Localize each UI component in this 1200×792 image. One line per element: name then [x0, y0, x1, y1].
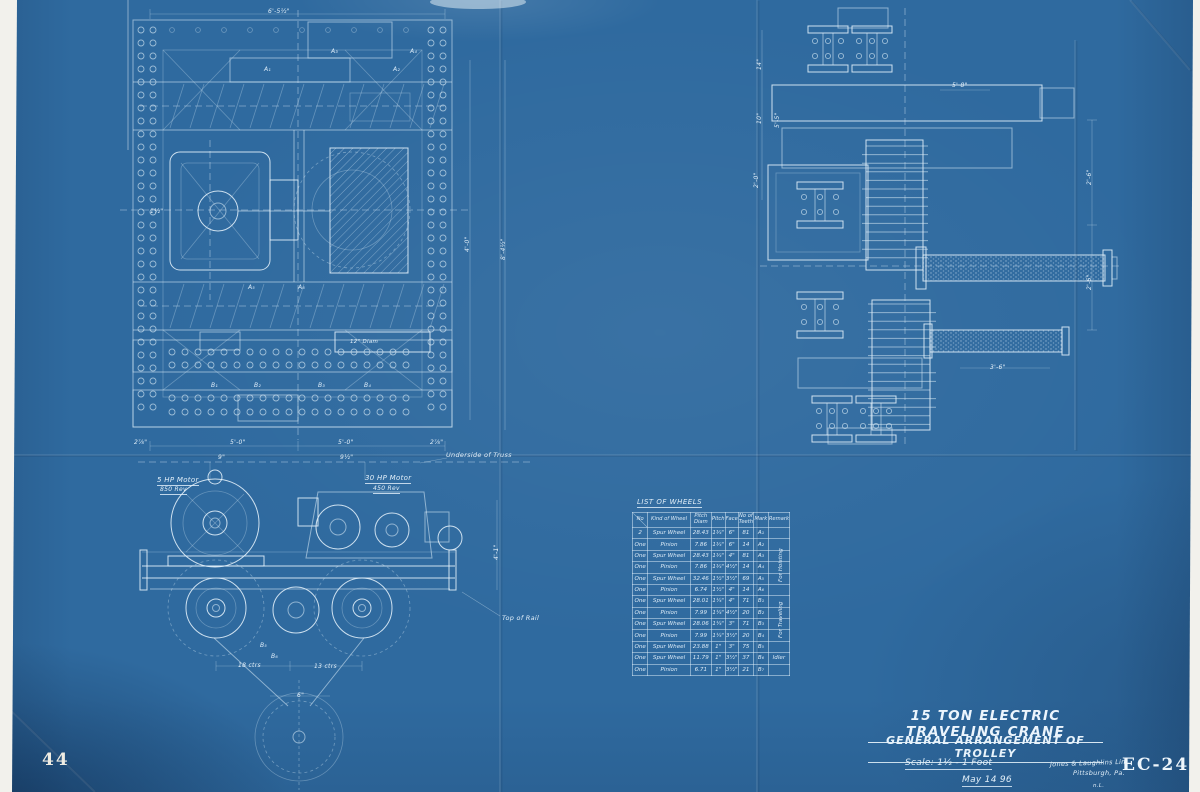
drum-diameter-label: 12" Diam [350, 339, 378, 345]
wheel-cell: 1¼" [711, 619, 725, 630]
fold-creases [0, 0, 1200, 792]
wheel-cell: Spur Wheel [648, 527, 690, 538]
wheel-cell: 69 [738, 573, 753, 584]
wheel-cell: Pinion [648, 539, 690, 550]
wheel-cell: 3½" [725, 664, 738, 675]
wheel-cell: 28.01 [690, 596, 711, 607]
wheel-cell: 6.74 [690, 584, 711, 595]
plan-view [120, 10, 470, 440]
wheel-cell: 1¾" [711, 527, 725, 538]
list-of-wheels: LIST OF WHEELS NoKind of WheelPitch Diam… [632, 491, 804, 676]
wheel-mark: B₆ [271, 653, 278, 660]
wheel-cell: 20 [738, 630, 753, 641]
wheel-col-header: Remark [768, 513, 789, 528]
draftsman-initials: n.L. [1093, 783, 1104, 789]
wheel-cell: Spur Wheel [648, 596, 690, 607]
wheel-cell: A₃ [754, 550, 769, 561]
wheel-cell: 1¼" [711, 596, 725, 607]
wheel-mark: B₂ [254, 382, 261, 389]
wheel-row: OneSpur Wheel11.791"3½"37B₆Idler [633, 653, 790, 664]
dimension-label: 5'-0" [230, 439, 246, 446]
drum-coil-ribs [862, 146, 936, 424]
wheel-cell: Pinion [648, 630, 690, 641]
wheel-cell: Spur Wheel [648, 573, 690, 584]
wheel-cell: 1" [711, 641, 725, 652]
wheel-cell: One [633, 550, 648, 561]
list-of-wheels-table: NoKind of WheelPitch DiamPitchFaceNo of … [632, 512, 790, 676]
wheel-mark: A₁ [264, 66, 271, 73]
wheel-row: OnePinion7.861¾"6"14A₂ [633, 539, 790, 550]
motor-30hp-speed-label: 450 Rev [373, 485, 400, 494]
dimension-label: 5'-8" [952, 82, 968, 89]
wheel-cell: 1½" [711, 573, 725, 584]
wheel-mark: A₃ [331, 48, 338, 55]
scale-label: Scale: 1½ - 1 Foot [905, 758, 992, 770]
wheel-cell: B₃ [754, 619, 769, 630]
motor-5hp-speed-label: 850 Rev [160, 486, 187, 495]
wheel-cell: One [633, 607, 648, 618]
dimension-label: 6'-5½" [268, 8, 290, 15]
fold-glare [430, 0, 526, 9]
wheel-cell: 71 [738, 619, 753, 630]
wheel-cell [768, 584, 789, 595]
dimension-label: 13 ctrs [314, 663, 337, 670]
dimension-label: 2'-0" [753, 172, 760, 188]
wheel-row: OnePinion7.861¾"4½"14A₄ [633, 562, 790, 573]
wheel-cell: 1¾" [711, 562, 725, 573]
dimension-label: 4'-1" [493, 544, 500, 560]
wheel-cell: 28.43 [690, 527, 711, 538]
wheel-cell [768, 664, 789, 675]
drawing-number: EC-24 [1122, 755, 1189, 775]
wheel-cell: Pinion [648, 562, 690, 573]
wheel-cell: A₁ [754, 527, 769, 538]
wheel-table-body: 2Spur Wheel28.431¾"6"81A₁OnePinion7.861¾… [633, 527, 790, 675]
wheel-mark: B₁ [211, 382, 218, 389]
wheel-cell: 3½" [725, 573, 738, 584]
wheel-cell: B₆ [754, 653, 769, 664]
wheel-mark: A₆ [298, 284, 305, 291]
wheel-cell: Pinion [648, 664, 690, 675]
wheel-row: OnePinion6.741½"4"14A₆ [633, 584, 790, 595]
wheel-row: OneSpur Wheel28.431¾"4"81A₃ [633, 550, 790, 561]
wheel-col-header: Kind of Wheel [648, 513, 690, 528]
wheel-cell [768, 527, 789, 538]
wheel-cell: 1¾" [711, 539, 725, 550]
wheel-cell: B₅ [754, 641, 769, 652]
dimension-label: 8'-4½" [500, 238, 507, 260]
wheel-cell: 1¼" [711, 607, 725, 618]
wheel-cell: B₂ [754, 607, 769, 618]
motor-30hp-label: 30 HP Motor [365, 474, 411, 484]
wheel-cell: 14 [738, 539, 753, 550]
wheel-table-head: NoKind of WheelPitch DiamPitchFaceNo of … [633, 513, 790, 528]
wheel-col-header: Face [725, 513, 738, 528]
dimension-label: 14" [756, 59, 763, 70]
wheel-cell: 1½" [711, 584, 725, 595]
wheel-cell: 6" [725, 527, 738, 538]
wheel-col-header: No [633, 513, 648, 528]
wheel-cell: 1¼" [711, 630, 725, 641]
wheel-cell: 3" [725, 619, 738, 630]
remark-for-hoisting: For Hoisting [778, 548, 784, 582]
dimension-label: 18 ctrs [238, 662, 261, 669]
wheel-cell: 4½" [725, 562, 738, 573]
wheel-row: OneSpur Wheel28.011¼"4"71B₁ [633, 596, 790, 607]
dimension-label: 2⅞" [430, 439, 443, 446]
wheel-cell: 21 [738, 664, 753, 675]
wheel-cell: Idler [768, 653, 789, 664]
motor-5hp-label: 5 HP Motor [157, 476, 199, 486]
blueprint-sheet: 5 HP Motor 850 Rev 30 HP Motor 450 Rev U… [0, 0, 1200, 792]
dimension-label: 9" [218, 454, 225, 461]
top-of-rail-label: Top of Rail [502, 614, 539, 622]
underside-of-truss-label: Underside of Truss [446, 451, 512, 459]
wheel-col-header: No of Teeth [738, 513, 753, 528]
wheel-cell: One [633, 630, 648, 641]
wheel-cell: 23.88 [690, 641, 711, 652]
wheel-cell: A₂ [754, 539, 769, 550]
ibeam-sections [797, 26, 896, 442]
wheel-row: OneSpur Wheel23.881"3"75B₅ [633, 641, 790, 652]
remark-for-traveling: For Traveling [778, 602, 784, 638]
wheel-cell: 7.99 [690, 630, 711, 641]
wheel-cell: 1" [711, 664, 725, 675]
wheel-cell: B₁ [754, 596, 769, 607]
wheel-mark: A₄ [410, 48, 417, 55]
dimension-label: 3'-6" [990, 364, 1006, 371]
wheel-cell: 3" [725, 641, 738, 652]
wheel-cell: 7.86 [690, 539, 711, 550]
wheel-cell: 4½" [725, 607, 738, 618]
wheel-cell: 4" [725, 550, 738, 561]
list-of-wheels-caption: LIST OF WHEELS [637, 498, 702, 508]
scanned-blueprint-page: 5 HP Motor 850 Rev 30 HP Motor 450 Rev U… [0, 0, 1200, 792]
wheel-cell: One [633, 539, 648, 550]
wheel-cell: One [633, 641, 648, 652]
wheel-col-header: Pitch Diam [690, 513, 711, 528]
wheel-cell: Pinion [648, 584, 690, 595]
wheel-cell: One [633, 573, 648, 584]
wheel-cell: One [633, 596, 648, 607]
end-elevation-view [138, 462, 530, 790]
dimension-label: 5'-0" [338, 439, 354, 446]
wheel-row: OneSpur Wheel32.461½"3½"69A₅ [633, 573, 790, 584]
wheel-cell: A₄ [754, 562, 769, 573]
dimension-label: 6" [297, 692, 304, 699]
wheel-cell: 1¾" [711, 550, 725, 561]
wheel-cell: Pinion [648, 607, 690, 618]
wheel-cell: One [633, 664, 648, 675]
wheel-cell: 7.99 [690, 607, 711, 618]
wheel-mark: B₄ [364, 382, 371, 389]
wheel-cell: 4" [725, 584, 738, 595]
drawing-linework [0, 0, 1200, 792]
wheel-mark: B₃ [318, 382, 325, 389]
wheel-cell: 20 [738, 607, 753, 618]
wheel-cell: Spur Wheel [648, 550, 690, 561]
wheel-cell: One [633, 584, 648, 595]
wheel-cell: One [633, 653, 648, 664]
wheel-row: 2Spur Wheel28.431¾"6"81A₁ [633, 527, 790, 538]
wheel-cell: 81 [738, 550, 753, 561]
wheel-cell: 28.06 [690, 619, 711, 630]
wheel-mark: A₂ [393, 66, 400, 73]
wheel-cell: 7.86 [690, 562, 711, 573]
wheel-row: OneSpur Wheel28.061¼"3"71B₃ [633, 619, 790, 630]
wheel-col-header: Mark [754, 513, 769, 528]
sheet-number: 44 [42, 750, 70, 770]
wheel-cell: Spur Wheel [648, 619, 690, 630]
wheel-cell: 1" [711, 653, 725, 664]
wheel-cell: B₄ [754, 630, 769, 641]
wheel-cell: 71 [738, 596, 753, 607]
wheel-cell: 3½" [725, 630, 738, 641]
company-city: Pittsburgh, Pa. [1073, 769, 1125, 777]
wheel-cell: 28.43 [690, 550, 711, 561]
wheel-cell: 14 [738, 562, 753, 573]
wheel-cell: 3½" [725, 653, 738, 664]
wheel-cell: B₇ [754, 664, 769, 675]
wheel-cell: 32.46 [690, 573, 711, 584]
wheel-table-head-row: NoKind of WheelPitch DiamPitchFaceNo of … [633, 513, 790, 528]
wheel-cell: 4" [725, 596, 738, 607]
wheel-cell: 14 [738, 584, 753, 595]
wheel-col-header: Pitch [711, 513, 725, 528]
wheel-mark: A₅ [248, 284, 255, 291]
wheel-row: OnePinion7.991¼"4½"20B₂ [633, 607, 790, 618]
wheel-cell: Spur Wheel [648, 653, 690, 664]
wheel-cell: 75 [738, 641, 753, 652]
wheel-cell [768, 641, 789, 652]
dimension-label: 2'-6" [1086, 169, 1093, 185]
wheel-cell: 6.71 [690, 664, 711, 675]
dimension-label: 1½" [150, 208, 163, 215]
wheel-cell: A₆ [754, 584, 769, 595]
wheel-row: OnePinion7.991¼"3½"20B₄ [633, 630, 790, 641]
wheel-cell: One [633, 562, 648, 573]
date-label: May 14 96 [962, 775, 1012, 787]
dimension-label: 2⅞" [134, 439, 147, 446]
wheel-cell: 2 [633, 527, 648, 538]
wheel-cell: 6" [725, 539, 738, 550]
wheel-cell: One [633, 619, 648, 630]
dimension-label: 9½" [340, 454, 353, 461]
wheel-mark: B₅ [260, 642, 267, 649]
dimension-label: 4'-0" [464, 236, 471, 252]
wheel-row: OnePinion6.711"3½"21B₇ [633, 664, 790, 675]
dimension-label: 2'-6" [1086, 274, 1093, 290]
dimension-label: 10" [756, 113, 763, 124]
dimension-label: 5'-5" [774, 112, 781, 128]
wheel-cell: Spur Wheel [648, 641, 690, 652]
wheel-cell: A₅ [754, 573, 769, 584]
wheel-cell: 81 [738, 527, 753, 538]
wheel-cell: 37 [738, 653, 753, 664]
wheel-cell: 11.79 [690, 653, 711, 664]
